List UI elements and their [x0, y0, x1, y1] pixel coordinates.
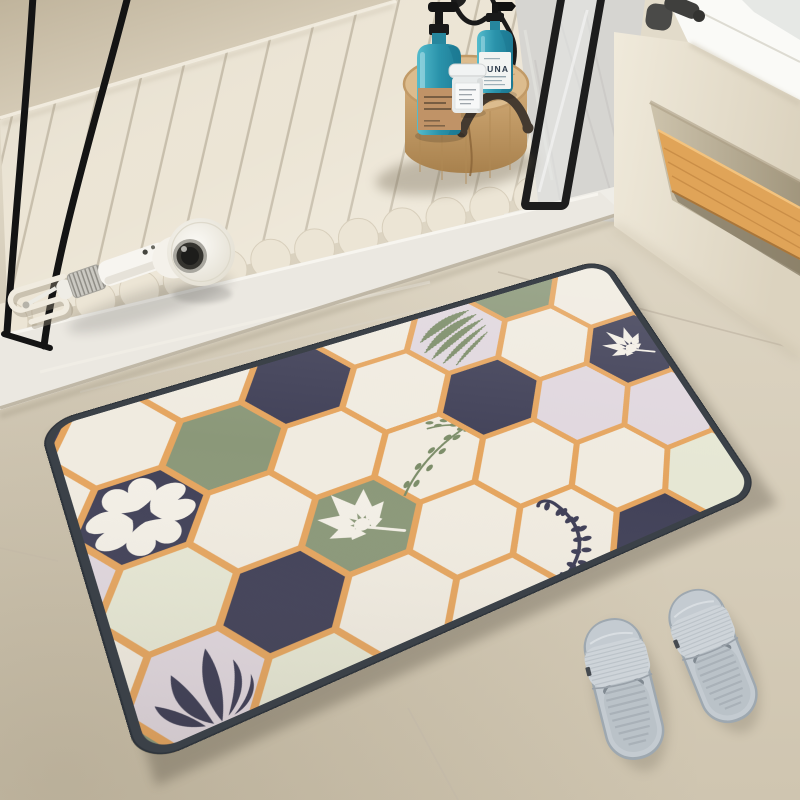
jar-label: [455, 83, 480, 109]
bathroom-scene: LUNA: [0, 0, 800, 800]
cream-jar: [449, 64, 486, 113]
